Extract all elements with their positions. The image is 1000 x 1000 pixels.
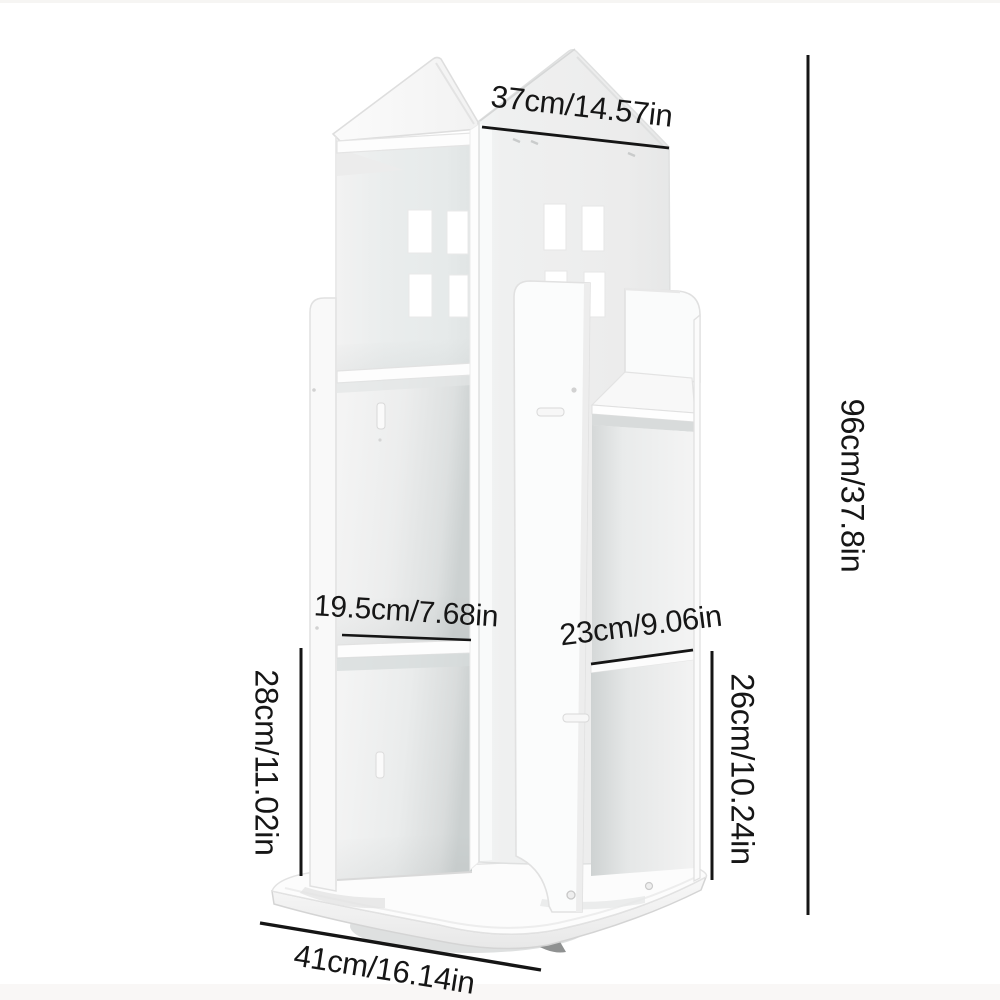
svg-text:26cm/10.24in: 26cm/10.24in [724,673,760,865]
svg-text:28cm/11.02in: 28cm/11.02in [249,669,285,855]
svg-text:96cm/37.8in: 96cm/37.8in [834,399,870,573]
